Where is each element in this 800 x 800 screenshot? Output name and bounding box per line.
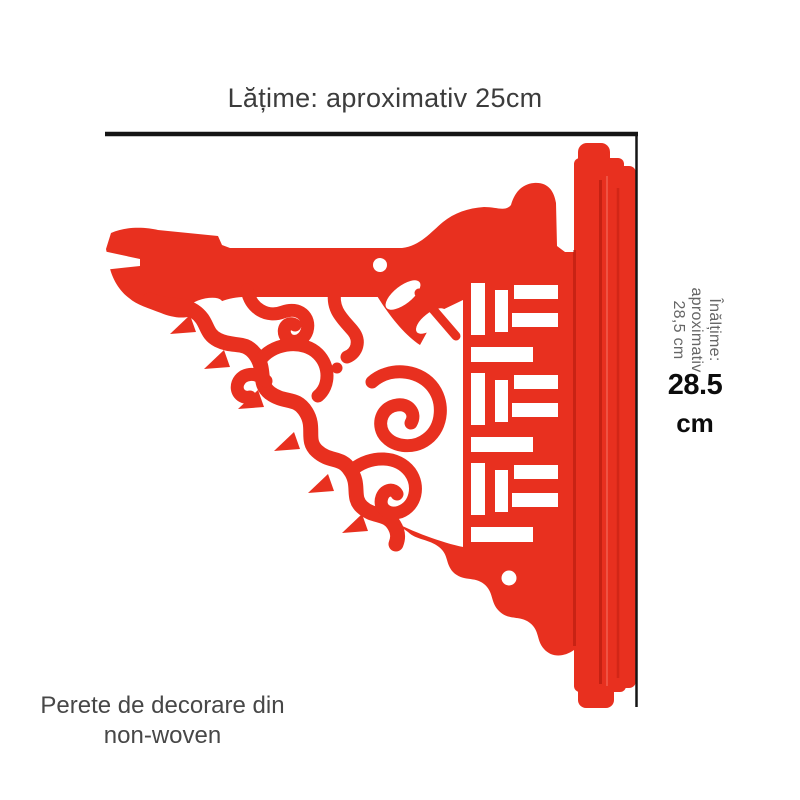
- width-dimension-label: Lățime: aproximativ 25cm: [135, 83, 635, 114]
- bracket-body: [103, 183, 574, 656]
- height-unit-label: cm: [645, 408, 745, 439]
- lattice-panel: [463, 276, 574, 560]
- wall-plate: [574, 143, 636, 708]
- product-caption: Perete de decorare din non-woven: [15, 691, 310, 751]
- product-caption-line-1: Perete de decorare din: [15, 691, 310, 721]
- plate-main: [574, 166, 636, 688]
- leaf-cutout-dot: [373, 258, 387, 272]
- height-value-label: 28.5: [645, 369, 745, 402]
- product-caption-line-2: non-woven: [15, 721, 310, 751]
- hanging-hole: [502, 571, 517, 586]
